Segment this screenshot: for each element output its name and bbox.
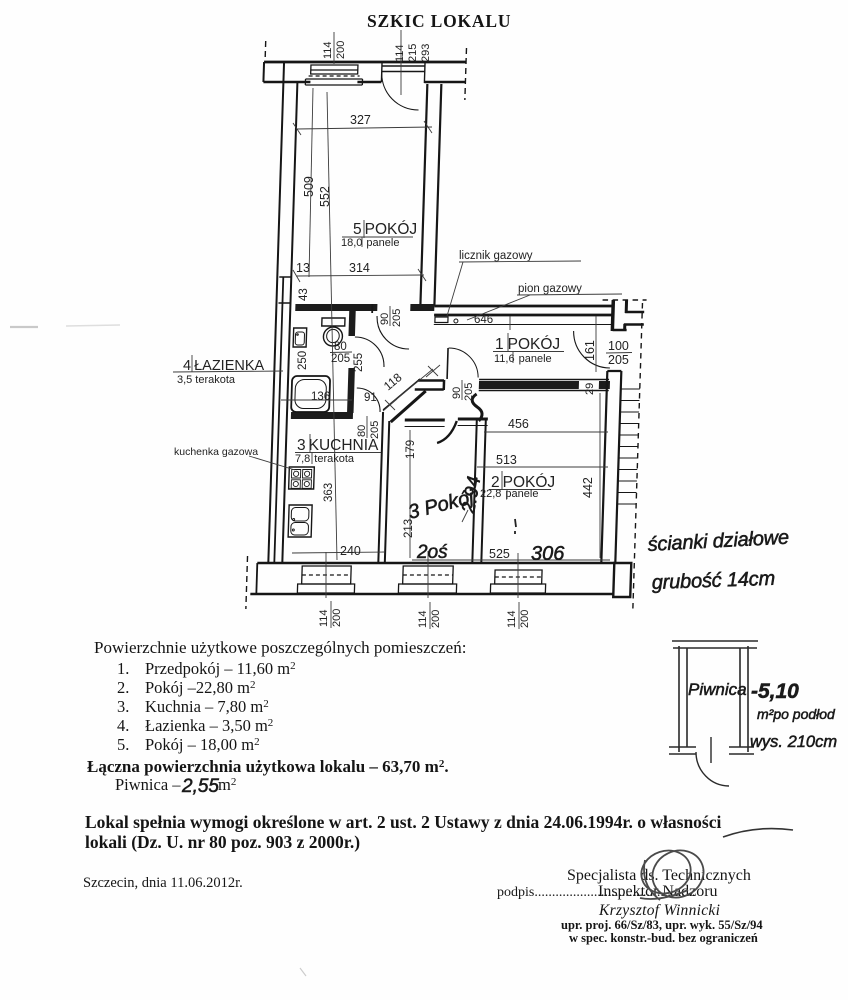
svg-text:363: 363 [323, 483, 335, 502]
svg-text:136: 136 [311, 391, 330, 403]
svg-text:5POKÓJ: 5POKÓJ [353, 221, 417, 238]
svg-text:w spec. konstr.-bud. bez ogran: w spec. konstr.-bud. bez ograniczeń [569, 931, 758, 945]
svg-text:-5,10: -5,10 [751, 680, 799, 703]
svg-text:205: 205 [369, 421, 381, 439]
svg-text:293: 293 [420, 44, 432, 62]
svg-text:11,6panele: 11,6panele [494, 353, 552, 365]
svg-text:255: 255 [353, 353, 365, 372]
svg-text:Powierzchnie użytkowe poszczeg: Powierzchnie użytkowe poszczególnych pom… [94, 638, 466, 657]
svg-text:Piwnica: Piwnica [688, 680, 747, 699]
svg-text:306: 306 [531, 543, 565, 565]
svg-text:200: 200 [430, 610, 442, 628]
svg-text:5.Pokój – 18,00 m2: 5.Pokój – 18,00 m2 [117, 735, 260, 754]
svg-text:200: 200 [335, 41, 347, 59]
svg-text:114: 114 [318, 609, 330, 627]
svg-text:205: 205 [608, 353, 629, 367]
svg-text:2oś: 2oś [416, 542, 448, 563]
svg-text:7,8terakota: 7,8terakota [295, 453, 355, 465]
svg-text:29: 29 [584, 383, 596, 395]
svg-text:442: 442 [581, 477, 595, 498]
svg-text:215: 215 [407, 44, 419, 62]
svg-text:pion gazowy: pion gazowy [518, 283, 582, 295]
svg-text:3KUCHNIA: 3KUCHNIA [297, 437, 379, 454]
svg-text:2,55: 2,55 [181, 776, 219, 797]
svg-text:lokali (Dz. U. nr 80 poz. 903: lokali (Dz. U. nr 80 poz. 903 z 2000r.) [85, 832, 360, 852]
svg-text:licznik gazowy: licznik gazowy [459, 250, 533, 262]
svg-text:2.Pokój –22,80 m2: 2.Pokój –22,80 m2 [117, 678, 255, 697]
svg-text:114: 114 [322, 41, 334, 59]
svg-text:552: 552 [318, 186, 332, 207]
svg-text:Krzysztof Winnicki: Krzysztof Winnicki [598, 902, 720, 919]
svg-text:250: 250 [297, 351, 309, 370]
svg-text:ścianki działowe: ścianki działowe [647, 527, 789, 556]
svg-text:205: 205 [463, 383, 475, 401]
svg-text:513: 513 [496, 453, 517, 467]
svg-text:4.Łazienka – 3,50 m2: 4.Łazienka – 3,50 m2 [117, 716, 273, 735]
svg-text:43: 43 [298, 288, 310, 301]
svg-text:upr. proj. 66/Sz/83, upr. wyk.: upr. proj. 66/Sz/83, upr. wyk. 55/Sz/94 [561, 918, 763, 932]
svg-text:91: 91 [364, 392, 377, 404]
svg-text:4ŁAZIENKA: 4ŁAZIENKA [183, 358, 265, 374]
svg-text:509: 509 [302, 176, 316, 197]
svg-text:80: 80 [334, 341, 347, 353]
svg-text:525: 525 [489, 547, 510, 561]
svg-text:240: 240 [340, 544, 361, 558]
svg-text:Lokal spełnia wymogi określone: Lokal spełnia wymogi określone w art. 2 … [85, 812, 722, 832]
svg-text:100: 100 [608, 339, 629, 353]
svg-text:200: 200 [519, 610, 531, 628]
svg-text:90: 90 [379, 313, 391, 325]
svg-text:114: 114 [417, 610, 429, 628]
svg-text:3.Kuchnia – 7,80 m2: 3.Kuchnia – 7,80 m2 [117, 697, 269, 716]
svg-text:18,0panele: 18,0panele [341, 237, 399, 249]
svg-text:114: 114 [394, 44, 406, 62]
svg-text:200: 200 [331, 609, 343, 627]
svg-text:205: 205 [391, 309, 403, 327]
svg-text:Szczecin, dnia 11.06.2012r.: Szczecin, dnia 11.06.2012r. [83, 875, 243, 891]
svg-text:205: 205 [331, 353, 350, 365]
svg-text:327: 327 [350, 113, 371, 127]
svg-text:114: 114 [506, 610, 518, 628]
svg-text:Specjalista ds. Technicznych: Specjalista ds. Technicznych [567, 867, 751, 884]
svg-text:SZKIC LOKALU: SZKIC LOKALU [367, 11, 511, 31]
svg-text:Łączna powierzchnia użytkowa l: Łączna powierzchnia użytkowa lokalu – 63… [87, 757, 449, 776]
svg-text:grubość 14cm: grubość 14cm [651, 568, 775, 594]
svg-text:m²po podłod: m²po podłod [757, 706, 836, 722]
svg-text:80: 80 [356, 425, 368, 437]
svg-text:wys. 210cm: wys. 210cm [750, 733, 837, 751]
svg-text:456: 456 [508, 417, 529, 431]
svg-text:314: 314 [349, 261, 370, 275]
svg-text:Piwnica –: Piwnica – [115, 775, 181, 794]
svg-text:161: 161 [583, 340, 597, 361]
svg-text:179: 179 [405, 440, 417, 459]
svg-text:1POKÓJ: 1POKÓJ [495, 336, 560, 353]
svg-text:22,8panele: 22,8panele [480, 488, 538, 500]
svg-text:646: 646 [474, 314, 493, 326]
svg-text:2.94: 2.94 [458, 475, 485, 516]
svg-text:1.Przedpokój – 11,60 m2: 1.Przedpokój – 11,60 m2 [117, 659, 296, 678]
svg-text:kuchenka gazowa: kuchenka gazowa [174, 446, 258, 458]
svg-text:13: 13 [296, 261, 310, 275]
svg-text:m2: m2 [218, 775, 236, 794]
svg-text:118: 118 [381, 370, 405, 393]
svg-text:90: 90 [451, 387, 463, 399]
svg-text:3,5terakota: 3,5terakota [177, 374, 236, 386]
